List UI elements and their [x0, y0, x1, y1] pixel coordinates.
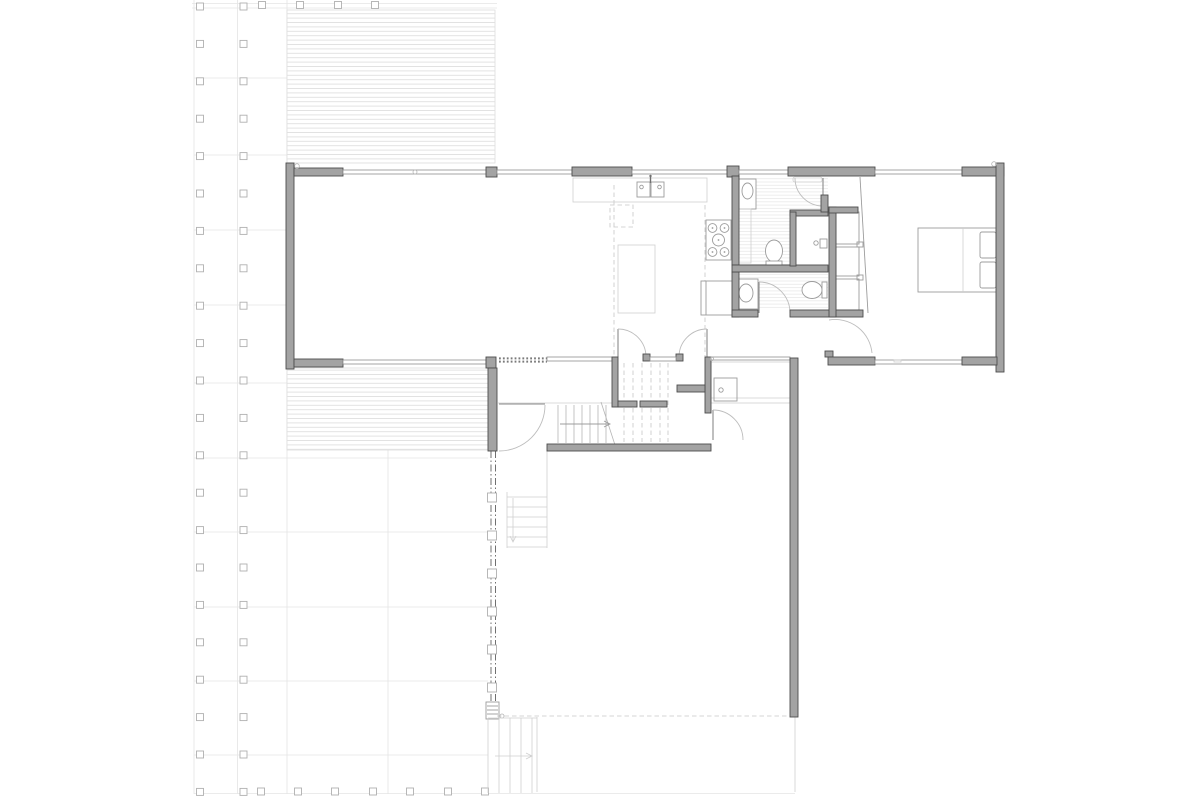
site-post	[197, 40, 204, 47]
site-post	[197, 489, 204, 496]
site-post	[197, 676, 204, 683]
site-post	[197, 527, 204, 534]
upper-deck	[287, 10, 495, 163]
site-post	[240, 639, 247, 646]
pillow	[980, 232, 996, 258]
site-post	[297, 2, 304, 9]
site-post	[372, 2, 379, 9]
site-post	[407, 788, 414, 795]
closet-wall	[829, 207, 836, 317]
floor-plan-drawing	[0, 0, 1200, 800]
site-post	[197, 115, 204, 122]
site-post	[240, 302, 247, 309]
north-window	[632, 170, 728, 174]
west-wall	[286, 163, 294, 369]
floor-plan-canvas	[0, 0, 1200, 800]
site-post	[240, 227, 247, 234]
lower-deck	[287, 368, 488, 450]
site-post	[370, 788, 377, 795]
site-post	[259, 2, 266, 9]
screen-post	[488, 645, 497, 654]
site-post	[240, 527, 247, 534]
site-post	[197, 265, 204, 272]
site-post	[197, 601, 204, 608]
refrigerator	[701, 281, 733, 315]
east-wall	[996, 163, 1004, 372]
site-post	[197, 751, 204, 758]
site-post	[240, 788, 247, 795]
site-post	[240, 751, 247, 758]
site-post	[240, 564, 247, 571]
site-post	[197, 3, 204, 10]
site-post	[240, 377, 247, 384]
south-window	[343, 360, 486, 364]
court-east-wall	[790, 358, 798, 717]
site-post	[332, 788, 339, 795]
site-post	[197, 377, 204, 384]
screen-post	[488, 531, 497, 540]
threshold	[650, 357, 676, 361]
north-window	[739, 170, 788, 174]
site-post	[240, 452, 247, 459]
north-window	[343, 170, 487, 174]
site-post	[335, 2, 342, 9]
site-post	[240, 190, 247, 197]
site-post	[197, 414, 204, 421]
screen-post	[488, 493, 497, 502]
site-post	[197, 714, 204, 721]
site-post	[482, 788, 489, 795]
site-post	[197, 227, 204, 234]
site-post	[240, 340, 247, 347]
site-post	[240, 40, 247, 47]
toilet	[802, 282, 827, 299]
site-post	[197, 452, 204, 459]
site-post	[295, 788, 302, 795]
north-window	[875, 170, 962, 174]
screen-post	[488, 569, 497, 578]
north-window	[497, 170, 572, 174]
site-post	[240, 153, 247, 160]
site-post	[197, 78, 204, 85]
court-north-wall	[547, 444, 711, 451]
site-post	[240, 676, 247, 683]
range-cooktop	[706, 220, 731, 260]
entry-closet-wall	[612, 357, 618, 407]
double-bed	[918, 228, 997, 292]
floor-slabs	[286, 160, 1006, 793]
site-post	[240, 115, 247, 122]
site-post	[197, 153, 204, 160]
site-post	[197, 639, 204, 646]
stair-west-wall	[488, 368, 497, 451]
site-post	[197, 788, 204, 795]
screen-post	[488, 683, 497, 692]
site-post	[240, 3, 247, 10]
site-post	[445, 788, 452, 795]
site-post	[258, 788, 265, 795]
site-post	[197, 564, 204, 571]
screen-post	[488, 607, 497, 616]
site-post	[240, 601, 247, 608]
site-post	[197, 340, 204, 347]
site-post	[197, 190, 204, 197]
site-post	[240, 714, 247, 721]
toilet	[766, 240, 783, 266]
pillow	[980, 262, 996, 288]
site-post	[240, 78, 247, 85]
site-post	[240, 489, 247, 496]
site-post	[240, 265, 247, 272]
site-post	[240, 414, 247, 421]
bedroom-south-window	[875, 360, 962, 364]
site-post	[197, 302, 204, 309]
